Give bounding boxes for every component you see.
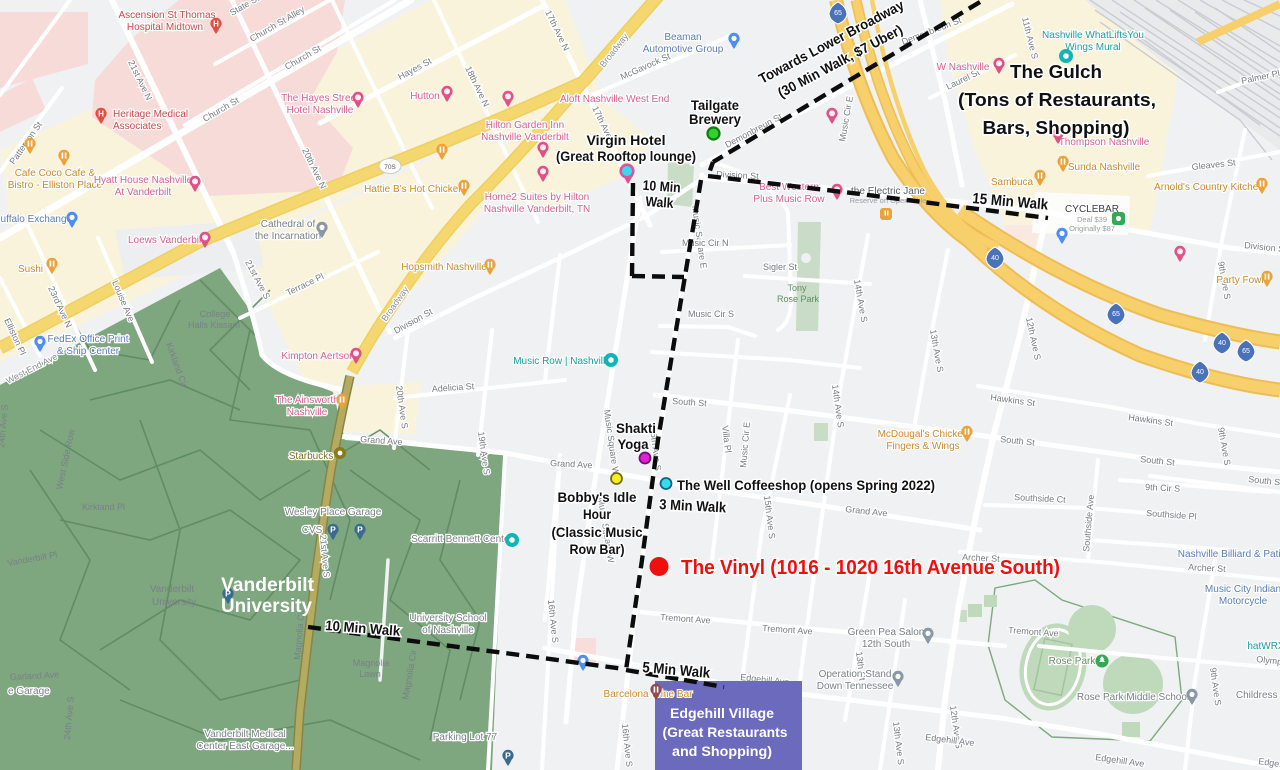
svg-text:9th Cir S: 9th Cir S	[1145, 482, 1180, 494]
svg-text:Sigler St: Sigler St	[763, 262, 798, 272]
svg-text:40: 40	[1196, 369, 1204, 376]
svg-text:Barcelona Wine Bar: Barcelona Wine Bar	[604, 689, 694, 700]
svg-text:Rose Park: Rose Park	[1049, 656, 1097, 667]
svg-text:(Great Rooftop lounge): (Great Rooftop lounge)	[556, 148, 696, 164]
svg-text:University School: University School	[409, 613, 486, 624]
svg-text:Center East Garage...: Center East Garage...	[196, 741, 293, 752]
svg-text:Vanderbilt Medical: Vanderbilt Medical	[204, 729, 286, 740]
svg-text:Rose Park: Rose Park	[777, 294, 820, 304]
svg-text:40: 40	[991, 255, 999, 262]
svg-text:McDougal's Chicken: McDougal's Chicken	[878, 429, 969, 440]
svg-text:CYCLEBAR: CYCLEBAR	[1065, 204, 1119, 215]
svg-text:Bars, Shopping): Bars, Shopping)	[983, 118, 1130, 138]
svg-text:Automotive Group: Automotive Group	[643, 44, 724, 55]
svg-text:Party Fowl: Party Fowl	[1216, 275, 1263, 286]
svg-text:Hutton: Hutton	[410, 91, 439, 102]
svg-text:Magnolia: Magnolia	[353, 658, 390, 668]
svg-text:12th South: 12th South	[862, 639, 910, 650]
svg-text:Kimpton Aertson: Kimpton Aertson	[281, 351, 354, 362]
svg-text:e Garage: e Garage	[8, 686, 50, 697]
svg-text:Edgehill Village: Edgehill Village	[670, 705, 774, 721]
svg-text:70S: 70S	[384, 164, 396, 171]
svg-text:University: University	[221, 596, 312, 617]
svg-text:Walk: Walk	[645, 193, 674, 211]
svg-text:The Gulch: The Gulch	[1010, 62, 1102, 82]
svg-text:Sambuca: Sambuca	[991, 177, 1034, 188]
svg-text:The Well Coffeeshop (opens Spr: The Well Coffeeshop (opens Spring 2022)	[677, 477, 935, 493]
svg-text:Hyatt House Nashville: Hyatt House Nashville	[94, 175, 193, 186]
svg-text:Music Cir S: Music Cir S	[688, 309, 734, 319]
svg-text:Heritage Medical: Heritage Medical	[113, 109, 188, 120]
svg-text:The Hayes Street: The Hayes Street	[281, 93, 359, 104]
svg-text:FedEx Office Print: FedEx Office Print	[48, 334, 129, 345]
svg-text:College: College	[200, 309, 231, 319]
svg-text:Aloft Nashville West End: Aloft Nashville West End	[560, 94, 669, 105]
svg-text:Bobby's Idle: Bobby's Idle	[558, 490, 637, 505]
svg-text:Halls Kissam: Halls Kissam	[188, 320, 240, 330]
svg-text:Hotel Nashville: Hotel Nashville	[287, 105, 354, 116]
svg-text:65: 65	[1112, 311, 1120, 318]
svg-text:Thompson Nashville: Thompson Nashville	[1059, 137, 1150, 148]
svg-text:Hour: Hour	[583, 507, 612, 522]
svg-text:hatWRX: hatWRX	[1247, 641, 1280, 652]
svg-text:Nashville: Nashville	[287, 407, 328, 418]
svg-text:Brewery: Brewery	[689, 111, 741, 127]
svg-text:Arnold's Country Kitchen: Arnold's Country Kitchen	[1154, 182, 1264, 193]
svg-text:Sushi: Sushi	[18, 264, 43, 275]
svg-text:Kirkland Pl: Kirkland Pl	[82, 502, 125, 512]
svg-text:Vanderbilt: Vanderbilt	[221, 575, 315, 596]
svg-text:Yoga: Yoga	[618, 436, 649, 452]
svg-text:The Ainsworth: The Ainsworth	[275, 395, 338, 406]
svg-text:Rose Park Middle School: Rose Park Middle School	[1077, 692, 1189, 703]
svg-text:(Tons of Restaurants,: (Tons of Restaurants,	[958, 90, 1156, 110]
svg-text:University: University	[152, 597, 196, 608]
svg-text:Buffalo Exchange: Buffalo Exchange	[0, 214, 73, 225]
svg-text:Childress G: Childress G	[1236, 690, 1280, 701]
svg-text:Down Tennessee: Down Tennessee	[817, 681, 894, 692]
svg-text:and Shopping): and Shopping)	[672, 743, 772, 759]
svg-text:Parking Lot 77: Parking Lot 77	[433, 732, 498, 743]
svg-text:W Nashville: W Nashville	[937, 62, 990, 73]
svg-text:Lawn: Lawn	[359, 669, 381, 679]
svg-text:Beaman: Beaman	[664, 32, 701, 43]
svg-text:Operation Stand: Operation Stand	[819, 669, 892, 680]
svg-text:Nashville Vanderbilt: Nashville Vanderbilt	[481, 132, 569, 143]
svg-text:(Great Restaurants: (Great Restaurants	[663, 724, 788, 740]
svg-text:Loews Vanderbilt: Loews Vanderbilt	[128, 235, 204, 246]
svg-text:the Incarnation: the Incarnation	[255, 231, 321, 242]
svg-text:Starbucks: Starbucks	[289, 451, 333, 462]
svg-text:Virgin Hotel: Virgin Hotel	[587, 132, 666, 148]
svg-text:Originally $87: Originally $87	[1069, 224, 1115, 233]
svg-text:of Nashville: of Nashville	[422, 625, 474, 636]
svg-text:Hattie B's Hot Chicken: Hattie B's Hot Chicken	[364, 184, 464, 195]
svg-text:Home2 Suites by Hilton: Home2 Suites by Hilton	[485, 192, 590, 203]
svg-text:At Vanderbilt: At Vanderbilt	[115, 187, 172, 198]
svg-text:Music Row | Nashville: Music Row | Nashville	[513, 356, 611, 367]
svg-text:Wesley Place Garage: Wesley Place Garage	[285, 507, 382, 518]
svg-text:Cafe Coco Cafe &: Cafe Coco Cafe &	[15, 168, 96, 179]
svg-text:40: 40	[1218, 340, 1226, 347]
svg-text:65: 65	[1242, 348, 1250, 355]
svg-text:Wings Mural: Wings Mural	[1065, 42, 1121, 53]
svg-text:The Vinyl (1016 - 1020 16th Av: The Vinyl (1016 - 1020 16th Avenue South…	[681, 557, 1060, 579]
svg-text:Nashville Billiard & Patio: Nashville Billiard & Patio	[1178, 549, 1280, 560]
svg-text:Fingers & Wings: Fingers & Wings	[886, 441, 959, 452]
svg-text:Cathedral of: Cathedral of	[261, 219, 316, 230]
svg-text:Ascension St Thomas: Ascension St Thomas	[118, 10, 215, 21]
svg-text:CVS: CVS	[302, 525, 323, 536]
svg-text:Nashville WhatLiftsYou: Nashville WhatLiftsYou	[1042, 30, 1144, 41]
svg-text:Deal $39: Deal $39	[1077, 215, 1107, 224]
svg-text:65: 65	[834, 10, 842, 17]
svg-text:Shakti: Shakti	[616, 420, 656, 436]
svg-text:Tony: Tony	[787, 283, 807, 293]
svg-text:Green Pea Salon: Green Pea Salon	[848, 627, 925, 638]
svg-text:Bistro - Elliston Place: Bistro - Elliston Place	[8, 180, 103, 191]
svg-text:Plus Music Row: Plus Music Row	[753, 194, 825, 205]
svg-text:Hilton Garden Inn: Hilton Garden Inn	[486, 120, 564, 131]
svg-text:Vanderbilt: Vanderbilt	[150, 584, 195, 595]
svg-text:Motorcycle: Motorcycle	[1219, 596, 1268, 607]
svg-text:Hospital Midtown: Hospital Midtown	[127, 22, 203, 33]
svg-text:Associates: Associates	[113, 121, 161, 132]
svg-text:(Classic Music: (Classic Music	[552, 525, 643, 540]
svg-text:Sunda Nashville: Sunda Nashville	[1068, 162, 1141, 173]
svg-text:Nashville Vanderbilt, TN: Nashville Vanderbilt, TN	[484, 204, 590, 215]
svg-text:Scarritt Bennett Center: Scarritt Bennett Center	[411, 534, 513, 545]
svg-text:Music City Indian: Music City Indian	[1205, 584, 1280, 595]
svg-text:Archer St: Archer St	[1188, 562, 1226, 574]
svg-text:& Ship Center: & Ship Center	[57, 346, 120, 357]
svg-text:Row Bar): Row Bar)	[570, 542, 625, 557]
svg-text:Hopsmith Nashville: Hopsmith Nashville	[401, 262, 487, 273]
